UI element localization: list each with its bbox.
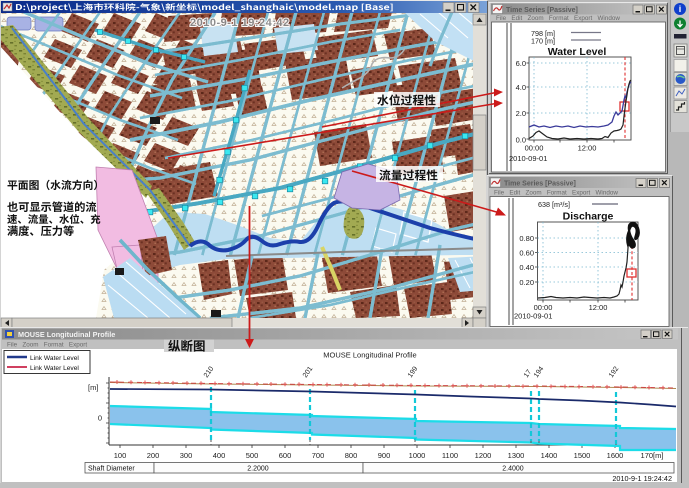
svg-text:Shaft Diameter: Shaft Diameter — [88, 466, 135, 473]
svg-text:600: 600 — [279, 451, 292, 460]
svg-text:800: 800 — [345, 451, 358, 460]
svg-text:File Edit Zoom Format: File Edit Zoom Format Export Window — [496, 15, 620, 22]
svg-text:170 [m]: 170 [m] — [531, 37, 555, 46]
svg-text:2010-9-1 19:24:42: 2010-9-1 19:24:42 — [190, 17, 290, 29]
svg-text:1000: 1000 — [409, 451, 426, 460]
svg-text:[m]: [m] — [88, 383, 98, 392]
svg-text:1400: 1400 — [541, 451, 558, 460]
svg-text:200: 200 — [147, 451, 160, 460]
svg-text:0.20: 0.20 — [519, 278, 534, 287]
svg-text:0.60: 0.60 — [519, 249, 534, 258]
svg-text:12:00: 12:00 — [589, 303, 608, 312]
svg-text:1200: 1200 — [475, 451, 492, 460]
svg-text:i: i — [679, 4, 682, 14]
svg-text:File Edit Zoom Format: File Edit Zoom Format Export Window — [494, 190, 618, 197]
svg-text:0: 0 — [98, 414, 102, 423]
svg-text:4.0: 4.0 — [516, 83, 526, 92]
svg-text:Link Water Level: Link Water Level — [30, 365, 79, 372]
svg-text:MOUSE Longitudinal Profile: MOUSE Longitudinal Profile — [323, 351, 416, 360]
svg-text:2010-09-01: 2010-09-01 — [514, 312, 552, 321]
svg-text:2.2000: 2.2000 — [247, 466, 269, 473]
svg-text:File Zoom Format Export: File Zoom Format Export — [7, 342, 87, 349]
svg-text:500: 500 — [246, 451, 259, 460]
svg-text:2010-9-1 19:24:42: 2010-9-1 19:24:42 — [612, 474, 672, 483]
svg-text:Discharge: Discharge — [563, 211, 614, 223]
svg-text:00:00: 00:00 — [525, 144, 544, 153]
svg-text:Time Series [Passive]: Time Series [Passive] — [504, 181, 576, 188]
svg-text:1100: 1100 — [442, 451, 458, 460]
svg-text:100: 100 — [114, 451, 127, 460]
svg-text:Link Water Level: Link Water Level — [30, 355, 79, 362]
svg-text:2.0: 2.0 — [516, 109, 526, 118]
svg-text:400: 400 — [213, 451, 226, 460]
svg-text:MOUSE Longitudinal Profile: MOUSE Longitudinal Profile — [18, 330, 115, 339]
svg-text:638 [m³/s]: 638 [m³/s] — [538, 200, 570, 209]
svg-text:12:00: 12:00 — [578, 144, 597, 153]
svg-text:Time Series [Passive]: Time Series [Passive] — [506, 7, 578, 14]
svg-text:1600: 1600 — [607, 451, 624, 460]
svg-text:2010-09-01: 2010-09-01 — [509, 154, 547, 163]
svg-text:900: 900 — [378, 451, 391, 460]
svg-text:170[m]: 170[m] — [641, 451, 664, 460]
svg-text:1300: 1300 — [508, 451, 525, 460]
svg-text:300: 300 — [180, 451, 193, 460]
svg-text:0.40: 0.40 — [519, 263, 534, 272]
svg-text:6.0: 6.0 — [516, 59, 526, 68]
svg-text:2.4000: 2.4000 — [502, 466, 524, 473]
svg-text:1500: 1500 — [574, 451, 591, 460]
svg-text:0.80: 0.80 — [519, 234, 534, 243]
svg-text:700: 700 — [312, 451, 325, 460]
svg-text:Water Level: Water Level — [548, 46, 607, 58]
